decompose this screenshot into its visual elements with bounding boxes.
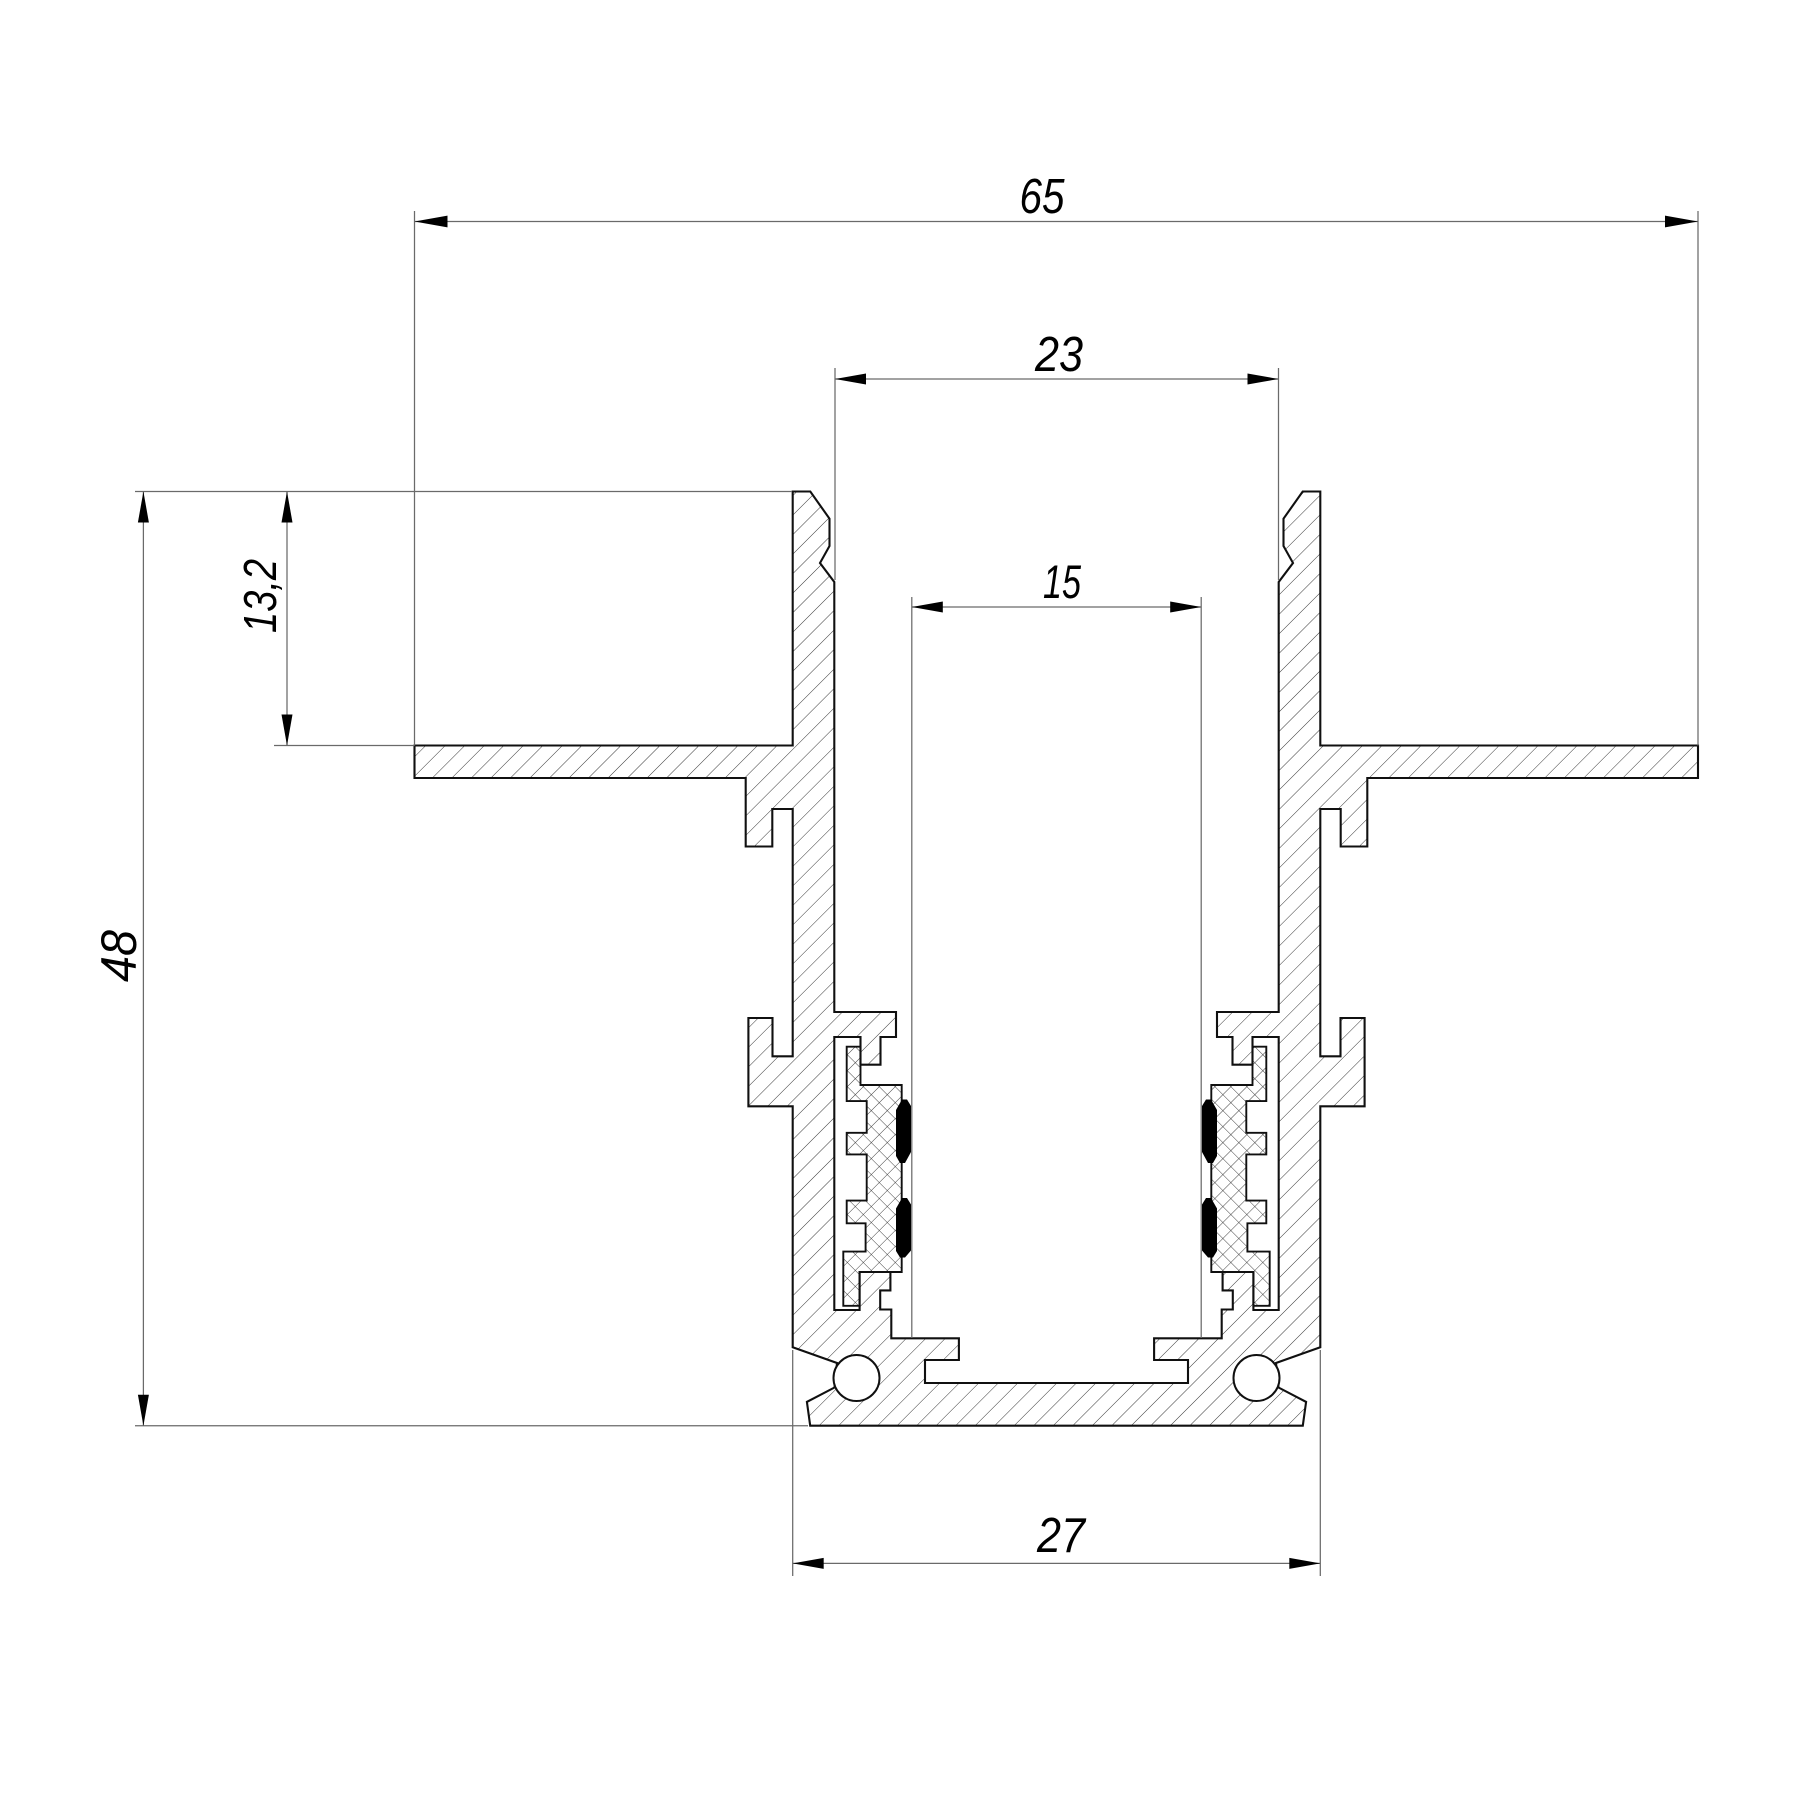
svg-text:15: 15 — [1043, 555, 1082, 608]
svg-text:48: 48 — [91, 930, 147, 982]
svg-text:13,2: 13,2 — [234, 559, 286, 633]
svg-text:27: 27 — [1036, 1509, 1086, 1563]
svg-text:23: 23 — [1034, 328, 1083, 382]
svg-text:65: 65 — [1020, 170, 1066, 224]
